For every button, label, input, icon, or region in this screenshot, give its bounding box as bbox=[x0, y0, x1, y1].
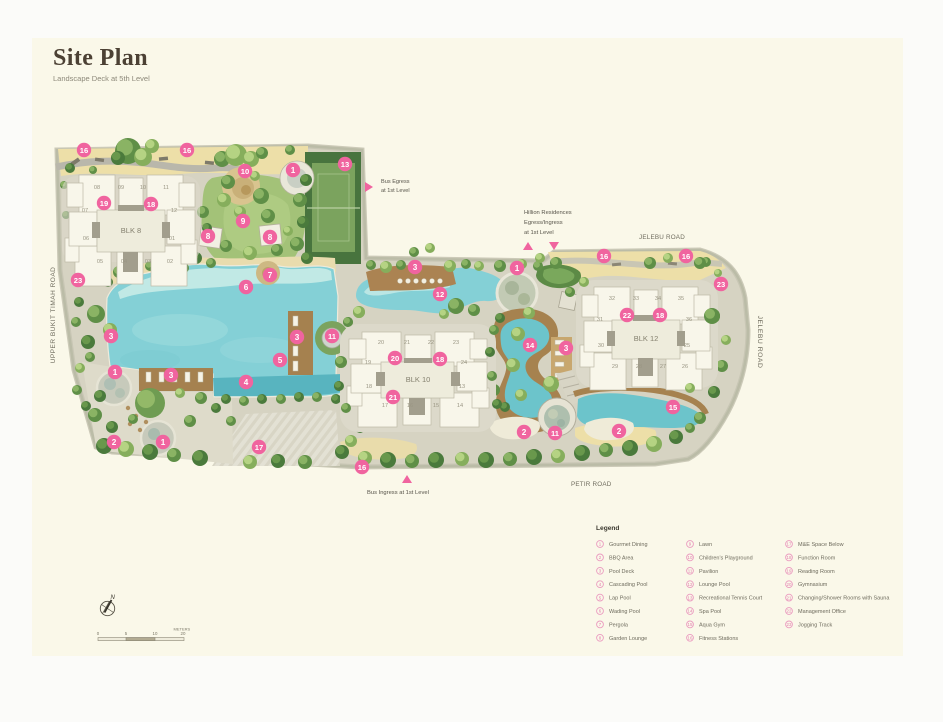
svg-text:22: 22 bbox=[428, 340, 434, 346]
svg-text:12: 12 bbox=[171, 208, 177, 214]
svg-text:16: 16 bbox=[358, 463, 366, 472]
svg-text:Gymnasium: Gymnasium bbox=[798, 582, 828, 588]
svg-text:at 1st Level: at 1st Level bbox=[524, 230, 554, 236]
svg-text:25: 25 bbox=[684, 343, 690, 349]
svg-text:14: 14 bbox=[457, 403, 463, 409]
svg-text:20: 20 bbox=[181, 631, 186, 636]
svg-text:Pavilion: Pavilion bbox=[699, 569, 718, 575]
svg-text:1: 1 bbox=[161, 438, 166, 447]
svg-text:11: 11 bbox=[551, 429, 560, 438]
svg-text:Lounge Pool: Lounge Pool bbox=[699, 582, 730, 588]
svg-text:17: 17 bbox=[255, 443, 263, 452]
svg-text:23: 23 bbox=[787, 622, 792, 627]
svg-text:5: 5 bbox=[278, 356, 283, 365]
svg-text:23: 23 bbox=[453, 340, 459, 346]
svg-text:18: 18 bbox=[147, 200, 155, 209]
svg-text:Hillion Residences: Hillion Residences bbox=[524, 210, 572, 216]
svg-text:15: 15 bbox=[433, 403, 439, 409]
svg-text:21: 21 bbox=[404, 340, 410, 346]
svg-text:27: 27 bbox=[660, 364, 666, 370]
svg-text:13: 13 bbox=[459, 384, 465, 390]
svg-text:1: 1 bbox=[515, 264, 520, 273]
svg-text:4: 4 bbox=[244, 378, 249, 387]
svg-text:13: 13 bbox=[688, 595, 693, 600]
svg-text:19: 19 bbox=[787, 569, 792, 574]
svg-text:11: 11 bbox=[328, 332, 337, 341]
svg-text:3: 3 bbox=[413, 263, 418, 272]
svg-text:Recreational Tennis Court: Recreational Tennis Court bbox=[699, 596, 763, 602]
svg-text:Wading Pool: Wading Pool bbox=[609, 609, 640, 615]
svg-text:11: 11 bbox=[688, 569, 693, 574]
svg-text:16: 16 bbox=[407, 403, 413, 409]
svg-text:Garden Lounge: Garden Lounge bbox=[609, 636, 647, 642]
svg-text:BBQ Area: BBQ Area bbox=[609, 555, 634, 561]
svg-text:10: 10 bbox=[153, 631, 158, 636]
svg-text:15: 15 bbox=[669, 403, 678, 412]
svg-text:20: 20 bbox=[787, 582, 792, 587]
svg-text:9: 9 bbox=[241, 217, 246, 226]
svg-text:3: 3 bbox=[564, 344, 569, 353]
svg-text:18: 18 bbox=[366, 384, 372, 390]
svg-text:26: 26 bbox=[682, 364, 688, 370]
svg-text:34: 34 bbox=[655, 296, 661, 302]
svg-text:1: 1 bbox=[291, 166, 296, 175]
svg-text:18: 18 bbox=[787, 555, 792, 560]
svg-text:8: 8 bbox=[268, 233, 273, 242]
svg-text:20: 20 bbox=[378, 340, 384, 346]
svg-text:22: 22 bbox=[787, 609, 792, 614]
svg-text:at 1st Level: at 1st Level bbox=[381, 188, 410, 194]
svg-text:23: 23 bbox=[74, 276, 82, 285]
svg-text:Function Room: Function Room bbox=[798, 555, 836, 561]
svg-text:31: 31 bbox=[597, 317, 603, 323]
svg-text:2: 2 bbox=[112, 438, 117, 447]
svg-text:35: 35 bbox=[678, 296, 684, 302]
svg-text:Children's Playground: Children's Playground bbox=[699, 555, 753, 561]
svg-text:12: 12 bbox=[436, 290, 444, 299]
svg-text:21: 21 bbox=[389, 393, 398, 402]
svg-text:8: 8 bbox=[206, 232, 211, 241]
svg-text:32: 32 bbox=[609, 296, 615, 302]
svg-text:Fitness Stations: Fitness Stations bbox=[699, 636, 738, 642]
svg-text:08: 08 bbox=[94, 185, 100, 191]
svg-text:02: 02 bbox=[167, 259, 173, 265]
svg-text:03: 03 bbox=[145, 259, 151, 265]
svg-text:33: 33 bbox=[633, 296, 639, 302]
svg-text:16: 16 bbox=[600, 252, 608, 261]
svg-text:16: 16 bbox=[688, 636, 693, 641]
svg-text:JELEBU ROAD: JELEBU ROAD bbox=[639, 234, 685, 241]
svg-text:2: 2 bbox=[617, 427, 622, 436]
svg-text:M&E Space Below: M&E Space Below bbox=[798, 542, 844, 548]
svg-text:BLK 12: BLK 12 bbox=[634, 334, 659, 343]
svg-text:09: 09 bbox=[118, 185, 124, 191]
svg-text:1: 1 bbox=[113, 368, 118, 377]
svg-text:Legend: Legend bbox=[596, 525, 619, 532]
svg-text:28: 28 bbox=[636, 364, 642, 370]
svg-text:30: 30 bbox=[598, 343, 604, 349]
svg-text:19: 19 bbox=[100, 199, 108, 208]
svg-text:16: 16 bbox=[183, 146, 191, 155]
svg-text:JELEBU ROAD: JELEBU ROAD bbox=[756, 316, 763, 369]
svg-text:16: 16 bbox=[682, 252, 690, 261]
svg-text:3: 3 bbox=[169, 371, 174, 380]
svg-text:16: 16 bbox=[80, 146, 88, 155]
svg-text:19: 19 bbox=[365, 360, 371, 366]
svg-text:7: 7 bbox=[268, 271, 273, 280]
svg-text:06: 06 bbox=[83, 236, 89, 242]
svg-text:Landscape Deck at 5th Level: Landscape Deck at 5th Level bbox=[53, 74, 150, 83]
svg-text:Aqua Gym: Aqua Gym bbox=[699, 622, 725, 628]
svg-text:Site Plan: Site Plan bbox=[53, 45, 148, 71]
svg-text:Gourmet Dining: Gourmet Dining bbox=[609, 542, 648, 548]
svg-text:Reading Room: Reading Room bbox=[798, 569, 835, 575]
svg-text:11: 11 bbox=[163, 185, 169, 191]
svg-text:Bus Ingress at 1st Level: Bus Ingress at 1st Level bbox=[367, 490, 429, 496]
svg-text:01: 01 bbox=[169, 236, 175, 242]
svg-text:04: 04 bbox=[121, 259, 127, 265]
svg-text:23: 23 bbox=[717, 280, 725, 289]
svg-text:13: 13 bbox=[341, 160, 349, 169]
svg-text:17: 17 bbox=[787, 542, 792, 547]
svg-text:PETIR ROAD: PETIR ROAD bbox=[571, 481, 612, 488]
svg-text:Lap Pool: Lap Pool bbox=[609, 596, 631, 602]
svg-text:N: N bbox=[111, 595, 116, 601]
svg-text:3: 3 bbox=[295, 333, 300, 342]
svg-text:18: 18 bbox=[436, 355, 444, 364]
svg-text:07: 07 bbox=[82, 208, 88, 214]
svg-text:29: 29 bbox=[612, 364, 618, 370]
svg-text:21: 21 bbox=[787, 595, 792, 600]
svg-text:2: 2 bbox=[522, 428, 527, 437]
svg-text:20: 20 bbox=[391, 354, 399, 363]
svg-text:Spa Pool: Spa Pool bbox=[699, 609, 721, 615]
svg-text:Cascading Pool: Cascading Pool bbox=[609, 582, 648, 588]
svg-text:Pergola: Pergola bbox=[609, 622, 629, 628]
svg-text:14: 14 bbox=[526, 341, 535, 350]
svg-text:10: 10 bbox=[688, 555, 693, 560]
svg-text:17: 17 bbox=[382, 403, 388, 409]
svg-text:6: 6 bbox=[244, 283, 249, 292]
svg-text:BLK 8: BLK 8 bbox=[121, 226, 141, 235]
svg-text:Pool Deck: Pool Deck bbox=[609, 569, 634, 575]
svg-text:05: 05 bbox=[97, 259, 103, 265]
svg-text:12: 12 bbox=[688, 582, 693, 587]
svg-text:36: 36 bbox=[686, 317, 692, 323]
svg-text:Egress/Ingress: Egress/Ingress bbox=[524, 220, 563, 226]
svg-text:BLK 10: BLK 10 bbox=[406, 375, 431, 384]
svg-text:UPPER BUKIT TIMAH ROAD: UPPER BUKIT TIMAH ROAD bbox=[50, 267, 57, 364]
svg-text:24: 24 bbox=[461, 360, 467, 366]
svg-text:22: 22 bbox=[623, 311, 631, 320]
svg-text:Lawn: Lawn bbox=[699, 542, 712, 548]
svg-text:Changing/Shower Rooms with Sau: Changing/Shower Rooms with Sauna bbox=[798, 596, 890, 602]
svg-text:18: 18 bbox=[656, 311, 664, 320]
svg-text:Jogging Track: Jogging Track bbox=[798, 622, 832, 628]
svg-text:14: 14 bbox=[688, 609, 693, 614]
svg-text:3: 3 bbox=[109, 332, 114, 341]
svg-text:10: 10 bbox=[140, 185, 146, 191]
svg-text:Bus Egress: Bus Egress bbox=[381, 179, 410, 185]
svg-text:Management Office: Management Office bbox=[798, 609, 846, 615]
svg-text:15: 15 bbox=[688, 622, 693, 627]
svg-text:10: 10 bbox=[241, 167, 249, 176]
